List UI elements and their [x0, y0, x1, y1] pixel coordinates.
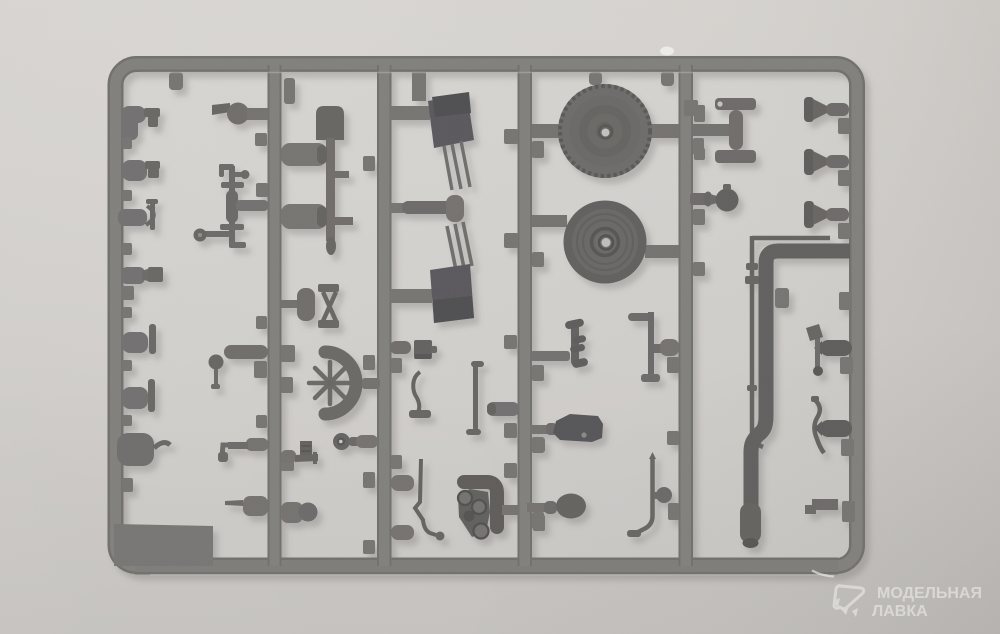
svg-text:МОДЕЛЬНАЯ: МОДЕЛЬНАЯ	[877, 585, 982, 602]
svg-text:ЛАВКА: ЛАВКА	[872, 603, 928, 620]
